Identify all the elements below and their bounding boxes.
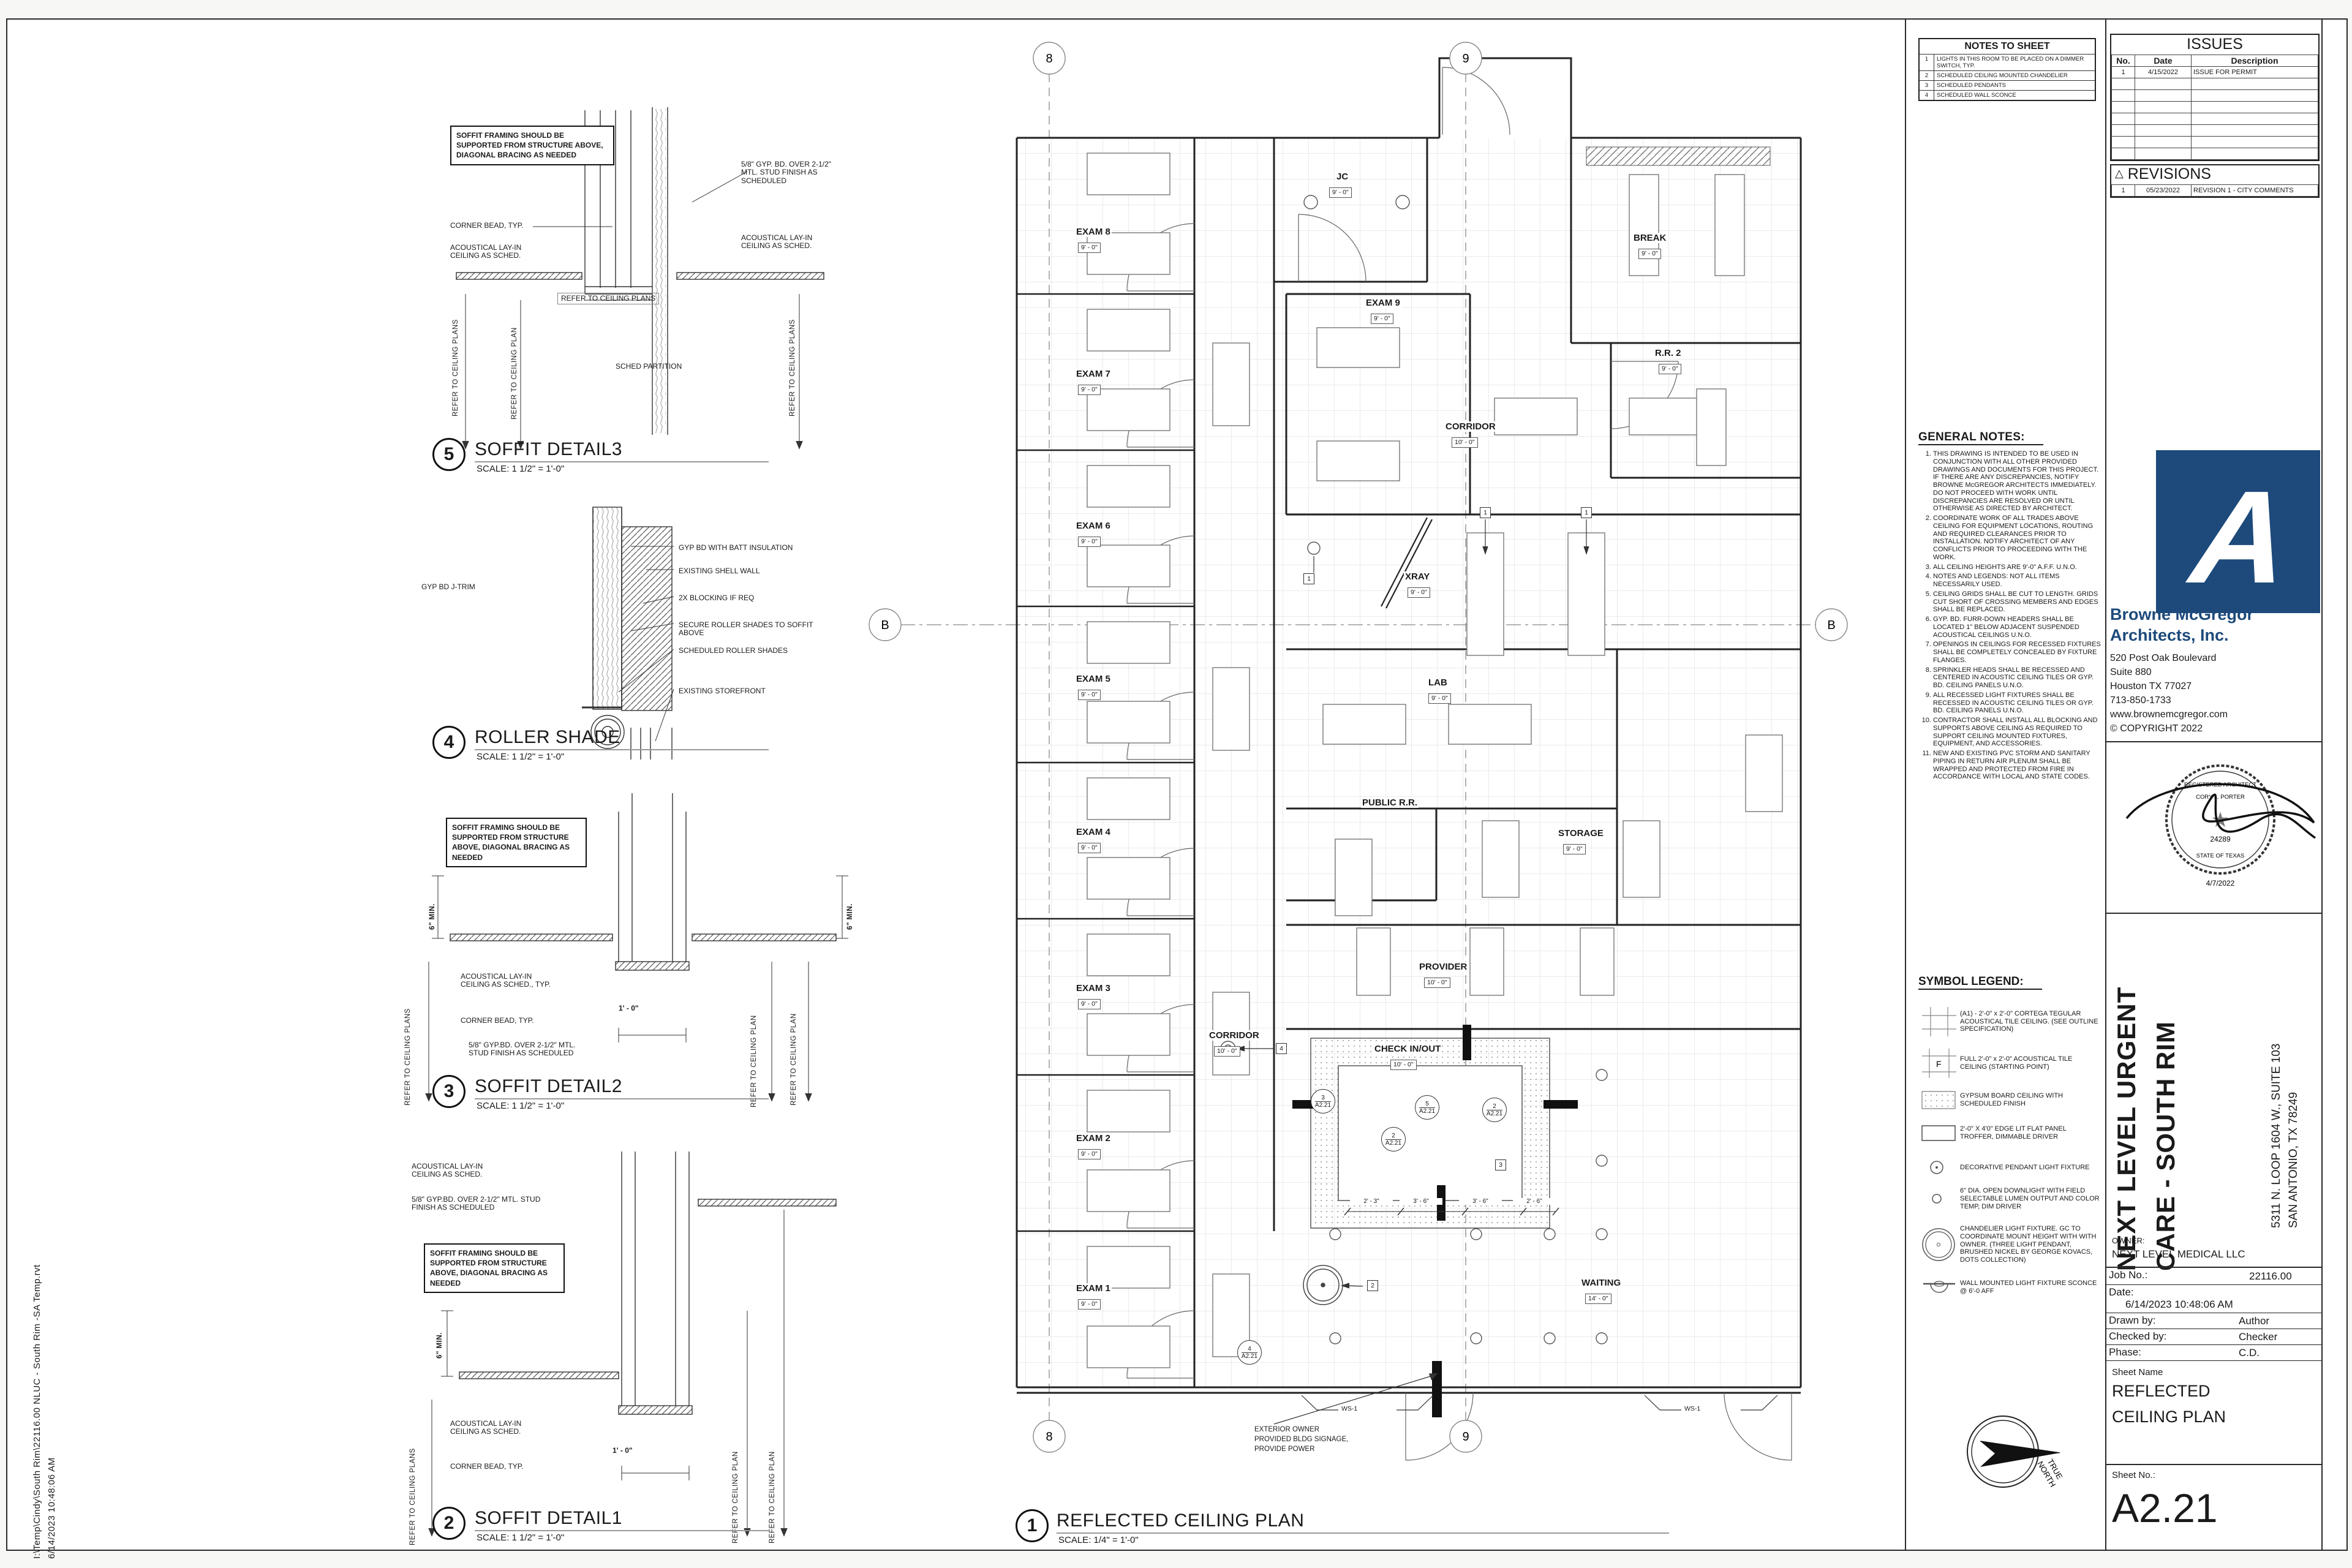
d2-gyp: 5/8" GYP.BD. OVER 2-1/2" MTL. STUD FINIS…: [412, 1196, 552, 1212]
detail3-underline: [475, 1098, 769, 1099]
callout-4-a221-waiting: 4 A2.21: [1237, 1340, 1262, 1365]
legend-text-gyp: GYPSUM BOARD CEILING WITH SCHEDULED FINI…: [1960, 1092, 2100, 1108]
sheet-number-label: Sheet No.:: [2112, 1470, 2155, 1480]
d5-acl-right: ACOUSTICAL LAY-IN CEILING AS SCHED.: [741, 234, 839, 251]
detail4-number: 4: [432, 726, 466, 759]
general-note-11: NEW AND EXISTING PVC STORM AND SANITARY …: [1933, 750, 2103, 781]
nts-row-2-text: SCHEDULED CEILING MOUNTED CHANDELIER: [1934, 71, 2095, 80]
d3-acl: ACOUSTICAL LAY-IN CEILING AS SCHED., TYP…: [461, 973, 552, 989]
sheet-name-label: Sheet Name: [2112, 1367, 2163, 1378]
issues-empty-row: [2112, 113, 2318, 125]
nts-row-3: 3 SCHEDULED PENDANTS: [1920, 80, 2095, 90]
seal-license-number: 24289: [2210, 835, 2231, 843]
symbol-legend-title: SYMBOL LEGEND:: [1918, 975, 2042, 990]
d2-dim: 1' - 0": [612, 1447, 633, 1455]
grid-bubble-b-right: B: [1827, 619, 1835, 632]
room-label-storage: STORAGE: [1557, 828, 1605, 839]
d2-framing-note: SOFFIT FRAMING SHOULD BE SUPPORTED FROM …: [424, 1243, 565, 1293]
phase-row: Phase:: [2105, 1345, 2321, 1361]
callout-2-a221-right: 2 A2.21: [1482, 1098, 1507, 1122]
room-label-corridor-top: CORRIDOR: [1444, 421, 1497, 432]
revisions-row-1-no: 1: [2112, 185, 2135, 197]
d4-sched-roller: SCHEDULED ROLLER SHADES: [679, 647, 788, 655]
height-tag-jc: 9' - 0": [1329, 187, 1352, 198]
issues-empty-row: [2112, 90, 2318, 102]
signage-note-3: PROVIDE POWER: [1254, 1445, 1314, 1453]
issues-row-1-no: 1: [2112, 67, 2135, 78]
job-value: 22116.00: [2249, 1270, 2292, 1283]
issues-empty-row: [2112, 148, 2318, 160]
callout-5-num: 5: [1419, 1101, 1436, 1108]
legend-row-pendant: DECORATIVE PENDANT LIGHT FIXTURE: [1918, 1156, 2100, 1178]
callout-2-a221-mid: 2 A2.21: [1381, 1127, 1406, 1151]
firm-logo: A: [2156, 450, 2320, 613]
general-note-3: ALL CEILING HEIGHTS ARE 9'-0" A.F.F. U.N…: [1933, 563, 2103, 571]
height-tag-corridor-bottom: 10' - 0": [1214, 1046, 1240, 1057]
room-label-exam2: EXAM 2: [1075, 1133, 1112, 1144]
grid-bubble-b-left: B: [881, 619, 889, 632]
file-datetime-text: 6/14/2023 10:48:06 AM: [47, 1136, 57, 1559]
room-label-break: BREAK: [1632, 233, 1667, 243]
legend-text-sconce: WALL MOUNTED LIGHT FIXTURE SCONCE @ 6'-0…: [1960, 1280, 2100, 1295]
checked-value: Checker: [2239, 1331, 2277, 1343]
north-arrow-graphic: TRUE NORTH: [1957, 1406, 2092, 1510]
ws1-label-right: WS-1: [1683, 1405, 1702, 1412]
firm-logo-a-glyph: A: [2185, 461, 2296, 613]
d2-acl-top: ACOUSTICAL LAY-IN CEILING AS SCHED.: [412, 1163, 513, 1179]
detail2-underline: [475, 1530, 769, 1531]
d2-acl: ACOUSTICAL LAY-IN CEILING AS SCHED.: [450, 1420, 542, 1436]
d4-shell: EXISTING SHELL WALL: [679, 567, 760, 575]
seal-graphic: REGISTERED ARCHITECT CORY L. PORTER ★ 24…: [2119, 746, 2321, 905]
project-name-line-2: CARE - SOUTH RIM: [2151, 922, 2180, 1271]
callout-5-a221: 5 A2.21: [1415, 1095, 1439, 1120]
d3-refer-plan-b: REFER TO CEILING PLAN: [790, 962, 797, 1106]
revision-triangle-icon: △: [2115, 167, 2124, 179]
nts-row-1-text: LIGHTS IN THIS ROOM TO BE PLACED ON A DI…: [1934, 55, 2095, 70]
nts-row-2: 2 SCHEDULED CEILING MOUNTED CHANDELIER: [1920, 70, 2095, 80]
height-tag-exam2: 9' - 0": [1078, 1149, 1101, 1159]
firm-website: www.brownemcgregor.com: [2110, 709, 2228, 720]
firm-copyright: © COPYRIGHT 2022: [2110, 723, 2203, 734]
checked-label: Checked by:: [2109, 1330, 2167, 1342]
north-arrow: TRUE NORTH: [1957, 1406, 2092, 1513]
dim-3-6-b: 3' - 6": [1459, 1198, 1502, 1205]
owner-label: OWNER:: [2112, 1236, 2144, 1245]
nts-row-4-text: SCHEDULED WALL SCONCE: [1934, 91, 2095, 100]
room-label-exam9: EXAM 9: [1365, 298, 1401, 308]
grid-bubble-8-top: 8: [1046, 52, 1052, 66]
room-label-exam6: EXAM 6: [1075, 521, 1112, 531]
firm-address-3: Houston TX 77027: [2110, 681, 2192, 692]
grid-bubble-9-bottom: 9: [1462, 1430, 1469, 1444]
issues-header-desc: Description: [2192, 55, 2318, 67]
project-address-2: SAN ANTONIO, TX 78249: [2287, 952, 2301, 1228]
general-note-2: COORDINATE WORK OF ALL TRADES ABOVE CEIL…: [1933, 514, 2103, 562]
detail4-underline: [475, 749, 769, 750]
d5-refer-horizontal: REFER TO CEILING PLANS: [557, 293, 659, 304]
nts-row-3-no: 3: [1920, 81, 1934, 90]
legend-text-pendant: DECORATIVE PENDANT LIGHT FIXTURE: [1960, 1164, 2100, 1172]
room-label-exam4: EXAM 4: [1075, 827, 1112, 837]
job-label: Job No.:: [2109, 1269, 2147, 1281]
phase-label: Phase:: [2109, 1346, 2141, 1358]
callout-2m-num: 2: [1385, 1133, 1402, 1140]
height-tag-exam7: 9' - 0": [1078, 385, 1101, 395]
drawn-row: Drawn by:: [2105, 1313, 2321, 1329]
legend-row-gyp: GYPSUM BOARD CEILING WITH SCHEDULED FINI…: [1918, 1088, 2100, 1112]
separator-titleblock-right: [2321, 18, 2323, 1551]
acoustical-grid-icon: [1918, 1005, 1960, 1039]
height-tag-exam9: 9' - 0": [1371, 314, 1393, 324]
height-tag-rr2: 9' - 0": [1659, 364, 1681, 374]
general-notes: GENERAL NOTES: THIS DRAWING IS INTENDED …: [1918, 431, 2103, 783]
callout-2r-num: 2: [1487, 1103, 1503, 1110]
phase-value: C.D.: [2239, 1347, 2260, 1359]
d4-batt: GYP BD WITH BATT INSULATION: [679, 544, 793, 552]
height-tag-corridor-top: 10' - 0": [1452, 437, 1478, 448]
d4-storefront: EXISTING STOREFRONT: [679, 687, 766, 695]
legend-text-full-tile: FULL 2'-0" x 2'-0" ACOUSTICAL TILE CEILI…: [1960, 1055, 2100, 1071]
date-value: 6/14/2023 10:48:06 AM: [2125, 1298, 2233, 1311]
room-label-exam8: EXAM 8: [1075, 227, 1112, 237]
nts-row-4: 4 SCHEDULED WALL SCONCE: [1920, 90, 2095, 100]
issues-title: ISSUES: [2111, 35, 2318, 55]
revisions-title: △ REVISIONS: [2111, 165, 2318, 184]
gypsum-ceiling-icon: [1918, 1088, 1960, 1112]
general-note-4: NOTES AND LEGENDS: NOT ALL ITEMS NECESSA…: [1933, 573, 2103, 589]
plan-number: 1: [1016, 1509, 1049, 1542]
height-tag-break: 9' - 0": [1638, 249, 1661, 259]
d4-jtrim: GYP BD J-TRIM: [421, 583, 475, 591]
d3-framing-note: SOFFIT FRAMING SHOULD BE SUPPORTED FROM …: [446, 818, 587, 867]
project-name-line-1: NEXT LEVEL URGENT: [2112, 922, 2141, 1271]
seal-architect-name: CORY L. PORTER: [2196, 794, 2245, 801]
detail5-number: 5: [432, 438, 466, 471]
notes-to-sheet: NOTES TO SHEET 1 LIGHTS IN THIS ROOM TO …: [1918, 38, 2096, 101]
height-tag-exam6: 9' - 0": [1078, 537, 1101, 547]
pendant-icon: [1918, 1156, 1960, 1178]
chandelier-icon: [1918, 1220, 1960, 1269]
issues-empty-row: [2112, 78, 2318, 90]
soffit-detail1-drawing: [380, 1127, 851, 1550]
issues-empty-row: [2112, 102, 2318, 113]
ws1-label-left: WS-1: [1340, 1405, 1359, 1412]
d3-dim: 1' - 0": [619, 1005, 639, 1012]
room-label-jc: JC: [1335, 171, 1349, 182]
callout-4-num: 4: [1242, 1346, 1258, 1353]
room-label-exam1: EXAM 1: [1075, 1283, 1112, 1294]
d3-corner: CORNER BEAD, TYP.: [461, 1017, 534, 1025]
note-tag-1-xray-c: 1: [1581, 507, 1592, 518]
room-label-lab: LAB: [1427, 677, 1449, 688]
plan-title: REFLECTED CEILING PLAN: [1057, 1510, 1304, 1531]
revisions-title-text: REVISIONS: [2128, 165, 2211, 183]
nts-row-3-text: SCHEDULED PENDANTS: [1934, 81, 2095, 90]
issues-table: ISSUES No. Date Description 1 4/15/2022 …: [2110, 34, 2320, 161]
checked-row: Checked by:: [2105, 1329, 2321, 1345]
revisions-table: △ REVISIONS 1 05/23/2022 REVISION 1 - CI…: [2110, 164, 2320, 198]
architect-seal: REGISTERED ARCHITECT CORY L. PORTER ★ 24…: [2119, 746, 2321, 908]
legend-text-chandelier: CHANDELIER LIGHT FIXTURE. GC TO COORDINA…: [1960, 1225, 2100, 1265]
height-tag-exam4: 9' - 0": [1078, 843, 1101, 853]
callout-3-num: 3: [1315, 1095, 1332, 1102]
detail5-underline: [475, 461, 769, 462]
signage-note-1: EXTERIOR OWNER: [1254, 1426, 1319, 1434]
d5-refer-plans-left: REFER TO CEILING PLANS: [452, 288, 459, 417]
firm-name-2: Architects, Inc.: [2110, 626, 2229, 645]
detail3-number: 3: [432, 1075, 466, 1108]
legend-f-letter: F: [1936, 1059, 1942, 1069]
nts-row-2-no: 2: [1920, 71, 1934, 80]
detail3-scale: SCALE: 1 1/2" = 1'-0": [477, 1101, 564, 1111]
d3-gyp: 5/8" GYP.BD. OVER 2-1/2" MTL. STUD FINIS…: [469, 1041, 579, 1058]
downlight-icon: [1918, 1188, 1960, 1210]
titleblock-divider-2: [2105, 913, 2321, 914]
detail2-scale: SCALE: 1 1/2" = 1'-0": [477, 1532, 564, 1543]
drawn-value: Author: [2239, 1315, 2269, 1327]
titleblock-divider-4: [2105, 1464, 2321, 1465]
height-tag-provider: 10' - 0": [1424, 978, 1450, 988]
callout-4-sheet: A2.21: [1242, 1353, 1257, 1360]
d2-refer-plan-b: REFER TO CEILING PLAN: [769, 1390, 776, 1543]
notes-to-sheet-title: NOTES TO SHEET: [1920, 39, 2095, 54]
issues-empty-row: [2112, 125, 2318, 137]
legend-row-sconce: WALL MOUNTED LIGHT FIXTURE SCONCE @ 6'-0…: [1918, 1275, 2100, 1300]
legend-text-downlight: 6" DIA. OPEN DOWNLIGHT WITH FIELD SELECT…: [1960, 1187, 2100, 1211]
room-label-exam7: EXAM 7: [1075, 369, 1112, 379]
revisions-row-1-date: 05/23/2022: [2135, 185, 2192, 197]
separator-notes-left: [1905, 18, 1906, 1551]
legend-text-act: (A1) - 2'-0" x 2'-0" CORTEGA TEGULAR ACO…: [1960, 1010, 2100, 1034]
height-tag-storage: 9' - 0": [1563, 844, 1586, 854]
d5-refer-plans-right: REFER TO CEILING PLANS: [789, 288, 796, 417]
revisions-row-1: 1 05/23/2022 REVISION 1 - CITY COMMENTS: [2112, 185, 2318, 197]
legend-row-troffer: 2'-0" X 4'0" EDGE LIT FLAT PANEL TROFFER…: [1918, 1122, 2100, 1144]
project-address-1: 5311 N. LOOP 1604 W., SUITE 103: [2270, 952, 2283, 1228]
d3-6min-left: 6" MIN.: [429, 875, 436, 930]
room-label-rr2: R.R. 2: [1654, 348, 1683, 358]
callout-2m-sheet: A2.21: [1385, 1140, 1401, 1147]
general-note-8: SPRINKLER HEADS SHALL BE RECESSED AND CE…: [1933, 666, 2103, 690]
note-tag-2-waiting: 2: [1367, 1280, 1378, 1291]
detail5-title: SOFFIT DETAIL3: [475, 439, 622, 460]
room-label-provider: PROVIDER: [1418, 962, 1468, 972]
dim-2-3: 2' - 3": [1350, 1198, 1393, 1205]
d5-sched-partition: SCHED PARTITION: [616, 363, 682, 371]
legend-row-chandelier: CHANDELIER LIGHT FIXTURE. GC TO COORDINA…: [1918, 1220, 2100, 1269]
note-tag-1-xray-b: 1: [1480, 507, 1491, 518]
d5-framing-note: SOFFIT FRAMING SHOULD BE SUPPORTED FROM …: [450, 126, 614, 165]
seal-date: 4/7/2022: [2206, 879, 2235, 888]
plan-scale: SCALE: 1/4" = 1'-0": [1058, 1535, 1139, 1545]
d5-gyp-note: 5/8" GYP. BD. OVER 2-1/2" MTL. STUD FINI…: [741, 160, 848, 185]
d5-corner-bead: CORNER BEAD, TYP.: [450, 222, 524, 230]
detail4-scale: SCALE: 1 1/2" = 1'-0": [477, 752, 564, 762]
height-tag-check-in-out: 10' - 0": [1390, 1060, 1417, 1070]
height-tag-lab: 9' - 0": [1428, 693, 1451, 704]
nts-row-4-no: 4: [1920, 91, 1934, 100]
d4-blocking: 2X BLOCKING IF REQ: [679, 594, 754, 602]
callout-3-sheet: A2.21: [1315, 1102, 1331, 1109]
firm-address-2: Suite 880: [2110, 667, 2152, 678]
height-tag-xray: 9' - 0": [1408, 587, 1430, 598]
date-label: Date:: [2109, 1286, 2134, 1298]
detail4-title: ROLLER SHADE: [475, 727, 620, 748]
issues-row-1-desc: ISSUE FOR PERMIT: [2192, 67, 2318, 78]
detail4-linework: [582, 507, 674, 759]
ws1-leaders: [1302, 1395, 1777, 1410]
detail3-title: SOFFIT DETAIL2: [475, 1076, 622, 1097]
plan-linework: 8 9 8 9 B B: [845, 24, 1850, 1543]
sheet-name-line-2: CEILING PLAN: [2112, 1408, 2226, 1427]
height-tag-exam5: 9' - 0": [1078, 690, 1101, 700]
note-tag-3-checkin: 3: [1495, 1159, 1506, 1170]
general-note-7: OPENINGS IN CEILINGS FOR RECESSED FIXTUR…: [1933, 641, 2103, 664]
detail2-title: SOFFIT DETAIL1: [475, 1508, 622, 1529]
dim-3-6-a: 3' - 6": [1400, 1198, 1442, 1205]
room-label-waiting: WAITING: [1580, 1278, 1622, 1288]
height-tag-exam1: 9' - 0": [1078, 1299, 1101, 1310]
issues-header-no: No.: [2112, 55, 2135, 67]
room-label-check-in-out: CHECK IN/OUT: [1373, 1044, 1442, 1054]
note-tag-1-xray-a: 1: [1303, 573, 1314, 584]
dim-2-6: 2' - 6": [1513, 1198, 1556, 1205]
d3-refer-plans: REFER TO CEILING PLANS: [404, 962, 412, 1106]
owner-name: NEXT LEVEL MEDICAL LLC: [2112, 1248, 2245, 1261]
general-note-9: ALL RECESSED LIGHT FIXTURES SHALL BE REC…: [1933, 692, 2103, 715]
nts-row-1-no: 1: [1920, 55, 1934, 70]
height-tag-waiting: 14' - 0": [1585, 1294, 1611, 1304]
general-note-6: GYP. BD. FURR-DOWN HEADERS SHALL BE LOCA…: [1933, 616, 2103, 639]
revisions-row-1-desc: REVISION 1 - CITY COMMENTS: [2192, 185, 2318, 197]
signage-note-2: PROVIDED BLDG SIGNAGE,: [1254, 1436, 1348, 1444]
grid-bubble-9-top: 9: [1462, 52, 1469, 66]
general-note-10: CONTRACTOR SHALL INSTALL ALL BLOCKING AN…: [1933, 717, 2103, 748]
detail2-number: 2: [432, 1507, 466, 1540]
general-note-1: THIS DRAWING IS INTENDED TO BE USED IN C…: [1933, 450, 2103, 513]
callout-3-a221: 3 A2.21: [1311, 1089, 1335, 1114]
sheet-number: A2.21: [2112, 1485, 2217, 1531]
legend-row-act: (A1) - 2'-0" x 2'-0" CORTEGA TEGULAR ACO…: [1918, 1005, 2100, 1039]
general-note-5: CEILING GRIDS SHALL BE CUT TO LENGTH. GR…: [1933, 590, 2103, 614]
issues-row-1-date: 4/15/2022: [2135, 67, 2192, 78]
nts-row-1: 1 LIGHTS IN THIS ROOM TO BE PLACED ON A …: [1920, 54, 2095, 70]
issues-header-row: No. Date Description: [2112, 55, 2318, 67]
firm-phone: 713-850-1733: [2110, 695, 2171, 706]
general-notes-title: GENERAL NOTES:: [1918, 431, 2043, 445]
titleblock-divider-1: [2105, 741, 2321, 742]
callout-2r-sheet: A2.21: [1487, 1110, 1502, 1117]
issues-empty-row: [2112, 137, 2318, 148]
firm-name-1: Browne McGregor: [2110, 605, 2253, 624]
drawn-label: Drawn by:: [2109, 1314, 2156, 1326]
legend-row-full-tile: F FULL 2'-0" x 2'-0" ACOUSTICAL TILE CEI…: [1918, 1046, 2100, 1080]
reflected-ceiling-plan: 8 9 8 9 B B EXAM 8 9' - 0" EXAM 7 9' - 0…: [845, 24, 1850, 1543]
detail5-scale: SCALE: 1 1/2" = 1'-0": [477, 464, 564, 474]
issues-row-1: 1 4/15/2022 ISSUE FOR PERMIT: [2112, 67, 2318, 78]
seal-state: STATE OF TEXAS: [2196, 853, 2245, 859]
d2-refer-plan-a: REFER TO CEILING PLAN: [732, 1409, 739, 1543]
troffer-icon: [1918, 1122, 1960, 1144]
d2-refer-plans: REFER TO CEILING PLANS: [409, 1401, 417, 1545]
legend-row-downlight: 6" DIA. OPEN DOWNLIGHT WITH FIELD SELECT…: [1918, 1187, 2100, 1211]
sconce-icon: [1918, 1275, 1960, 1300]
full-tile-grid-icon: F: [1918, 1046, 1960, 1080]
room-label-public-rr: PUBLIC R.R.: [1361, 797, 1419, 808]
file-path-text: I:\Temp\Cindy\South Rim\22116.00 NLUC - …: [32, 1136, 42, 1559]
plan-title-underline: [1057, 1532, 1669, 1534]
room-label-corridor-bottom: CORRIDOR: [1208, 1030, 1261, 1041]
room-label-exam5: EXAM 5: [1075, 674, 1112, 684]
d2-corner: CORNER BEAD, TYP.: [450, 1463, 524, 1471]
d5-refer-plan-left2: REFER TO CEILING PLAN: [511, 297, 518, 420]
break-gyp-hatch: [1586, 147, 1770, 165]
legend-text-troffer: 2'-0" X 4'0" EDGE LIT FLAT PANEL TROFFER…: [1960, 1125, 2100, 1141]
symbol-legend-title-wrap: SYMBOL LEGEND:: [1918, 975, 2042, 990]
d3-refer-plan-a: REFER TO CEILING PLAN: [750, 979, 758, 1107]
firm-address-1: 520 Post Oak Boulevard: [2110, 653, 2216, 664]
callout-5-sheet: A2.21: [1419, 1108, 1435, 1115]
height-tag-exam8: 9' - 0": [1078, 243, 1101, 253]
d2-6min: 6" MIN.: [436, 1303, 443, 1359]
note-tag-4-corridor: 4: [1276, 1043, 1287, 1054]
room-label-xray: XRAY: [1404, 571, 1431, 582]
room-label-exam3: EXAM 3: [1075, 983, 1112, 993]
issues-header-date: Date: [2135, 55, 2192, 67]
height-tag-exam3: 9' - 0": [1078, 999, 1101, 1009]
grid-bubble-8-bottom: 8: [1046, 1430, 1052, 1444]
d5-acl-left: ACOUSTICAL LAY-IN CEILING AS SCHED.: [450, 244, 542, 260]
sheet-name-line-1: REFLECTED: [2112, 1382, 2211, 1401]
d4-secure: SECURE ROLLER SHADES TO SOFFIT ABOVE: [679, 621, 838, 638]
